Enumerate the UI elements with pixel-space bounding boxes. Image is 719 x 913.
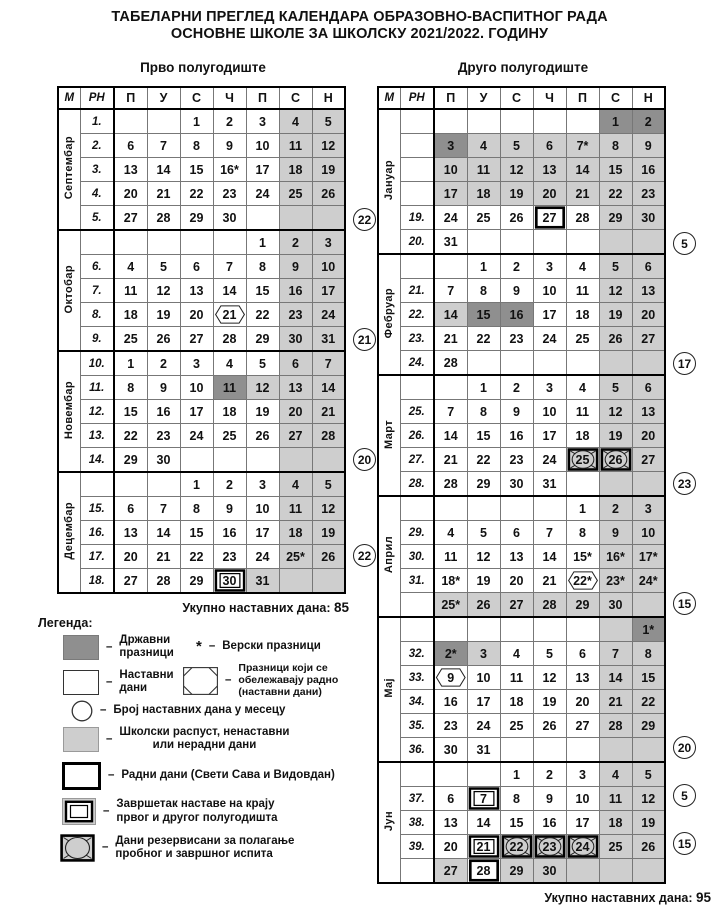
day-cell: 13: [533, 158, 566, 182]
day-cell: 26: [147, 327, 180, 352]
day-cell: 1: [180, 472, 213, 497]
day-cell: 10: [566, 787, 599, 811]
day-header-cell: П: [246, 87, 279, 109]
day-cell: 31: [533, 472, 566, 497]
exam-reserved-day-icon: [567, 835, 599, 858]
day-cell: 22: [114, 424, 147, 448]
second-semester-heading: Друго полугодиште: [377, 60, 669, 80]
week-number-cell: [400, 375, 434, 400]
day-cell: [434, 496, 467, 521]
week-number-cell: 21.: [400, 279, 434, 303]
legend-item-working-day: –Радни дани (Свети Сава и Видовдан): [62, 762, 335, 790]
day-cell: [566, 351, 599, 376]
day-cell: 30: [213, 206, 246, 231]
day-cell: 24: [434, 206, 467, 230]
day-cell: 22: [246, 303, 279, 327]
day-cell: [467, 351, 500, 376]
day-cell: [147, 109, 180, 134]
legend-dash: –: [106, 733, 112, 746]
day-cell: 20: [566, 690, 599, 714]
second-semester-table: МРНПУСЧПСНЈануар1234567*8910111213141516…: [377, 86, 666, 884]
day-cell: 4: [434, 521, 467, 545]
day-cell: 29: [180, 206, 213, 231]
day-cell: 13: [114, 521, 147, 545]
day-cell: 3: [566, 762, 599, 787]
week-number-cell: 36.: [400, 738, 434, 763]
day-cell: 9: [147, 376, 180, 400]
day-cell: 5: [467, 521, 500, 545]
day-cell: 25*: [279, 545, 312, 569]
day-cell: 23: [533, 835, 566, 859]
day-cell: [500, 230, 533, 255]
day-cell: [632, 472, 665, 497]
day-cell: 17: [533, 424, 566, 448]
day-cell: 7: [434, 400, 467, 424]
day-cell: [467, 109, 500, 134]
day-cell: 5: [599, 254, 632, 279]
day-cell: 11: [566, 279, 599, 303]
day-cell: 2: [599, 496, 632, 521]
day-cell: 12: [246, 376, 279, 400]
day-cell: 15: [632, 666, 665, 690]
day-cell: 8: [566, 521, 599, 545]
week-number-cell: 28.: [400, 472, 434, 497]
day-cell: 20: [114, 545, 147, 569]
day-cell: 10: [180, 376, 213, 400]
exam-reserved-day-icon: [534, 835, 566, 858]
day-cell: 13: [279, 376, 312, 400]
day-cell: 20: [500, 569, 533, 593]
day-cell: 25: [467, 206, 500, 230]
day-cell: 16*: [599, 545, 632, 569]
day-cell: 7: [312, 351, 345, 376]
legend-item-working-holiday: –Празници који се обележавају радно (нас…: [183, 663, 338, 698]
month-label: Април: [378, 496, 400, 617]
day-header-cell: С: [599, 87, 632, 109]
first-semester-table-wrap: МРНПУСЧПСНСептембар1.123452.67891011123.…: [57, 86, 392, 594]
legend-dash: –: [106, 641, 112, 654]
day-cell: 26: [500, 206, 533, 230]
day-cell: 23: [632, 182, 665, 206]
page-title: ТАБЕЛАРНИ ПРЕГЛЕД КАЛЕНДАРА ОБРАЗОВНО-ВА…: [0, 9, 719, 43]
day-cell: 22: [467, 327, 500, 351]
day-cell: 28: [434, 351, 467, 376]
legend-dash: –: [100, 704, 106, 717]
day-cell: 1: [599, 109, 632, 134]
day-cell: 26: [312, 545, 345, 569]
legend-item-religious-holiday: *–Верски празници: [196, 640, 321, 653]
day-cell: 17: [180, 400, 213, 424]
day-cell: [533, 109, 566, 134]
day-cell: [312, 206, 345, 231]
day-cell: 14: [434, 424, 467, 448]
day-cell: 16: [279, 279, 312, 303]
week-number-cell: 10.: [80, 351, 114, 376]
week-number-cell: 32.: [400, 642, 434, 666]
day-cell: 18: [279, 158, 312, 182]
day-cell: 14: [599, 666, 632, 690]
day-cell: 23*: [599, 569, 632, 593]
day-cell: 18: [599, 811, 632, 835]
day-cell: 30: [533, 859, 566, 884]
day-cell: 26: [312, 182, 345, 206]
day-cell: 8: [632, 642, 665, 666]
day-cell: [599, 617, 632, 642]
day-cell: 18: [566, 424, 599, 448]
day-cell: 29: [566, 593, 599, 618]
day-cell: 7: [147, 497, 180, 521]
week-number-cell: 23.: [400, 327, 434, 351]
day-header-cell: Н: [632, 87, 665, 109]
day-cell: [434, 254, 467, 279]
day-cell: 31: [434, 230, 467, 255]
day-cell: 12: [632, 787, 665, 811]
day-cell: 27: [500, 593, 533, 618]
exam-reserved-day-icon: [567, 448, 599, 471]
day-cell: 9: [213, 497, 246, 521]
day-cell: 20: [114, 182, 147, 206]
day-cell: 14: [147, 521, 180, 545]
day-cell: 25*: [434, 593, 467, 618]
day-cell: 6: [434, 787, 467, 811]
total-value: 85: [334, 600, 349, 615]
day-cell: 21: [599, 690, 632, 714]
legend-item-semester-end: –Завршетак наставе на крају првог и друг…: [62, 798, 278, 825]
teaching-days-count-circle: 23: [673, 472, 696, 495]
day-cell: 15: [180, 158, 213, 182]
day-cell: 18: [467, 182, 500, 206]
teaching-days-count-circle: 15: [673, 592, 696, 615]
day-cell: 19: [467, 569, 500, 593]
day-cell: 18: [566, 303, 599, 327]
day-cell: 29: [632, 714, 665, 738]
day-cell: [434, 762, 467, 787]
day-cell: 24: [246, 182, 279, 206]
day-cell: 16*: [213, 158, 246, 182]
total-label: Укупно наставних дана:: [544, 891, 692, 905]
day-cell: 22*: [566, 569, 599, 593]
legend-item-label: Празници који се обележавају радно (наст…: [238, 663, 338, 698]
week-number-cell: [400, 134, 434, 158]
day-cell: 13: [500, 545, 533, 569]
week-number-cell: 11.: [80, 376, 114, 400]
teaching-days-count-circle: 5: [673, 784, 696, 807]
day-cell: [533, 496, 566, 521]
day-cell: 3: [180, 351, 213, 376]
day-cell: 22: [180, 545, 213, 569]
day-cell: 29: [246, 327, 279, 352]
column-header-month: М: [58, 87, 80, 109]
day-cell: 14: [566, 158, 599, 182]
day-cell: 1: [246, 230, 279, 255]
day-cell: 5: [599, 375, 632, 400]
week-number-cell: [400, 158, 434, 182]
teaching-days-count-circle: 20: [353, 448, 376, 471]
day-cell: 8: [599, 134, 632, 158]
day-cell: [434, 375, 467, 400]
week-number-cell: 38.: [400, 811, 434, 835]
day-cell: 15: [467, 303, 500, 327]
day-cell: 28: [312, 424, 345, 448]
month-label: Мај: [378, 617, 400, 762]
day-cell: [533, 230, 566, 255]
day-cell: 2: [500, 254, 533, 279]
working-day-box-swatch: [62, 762, 101, 790]
day-cell: 10: [434, 158, 467, 182]
day-cell: 28: [467, 859, 500, 884]
day-cell: 4: [279, 472, 312, 497]
day-cell: 6: [500, 521, 533, 545]
day-cell: [599, 738, 632, 763]
day-cell: 17: [434, 182, 467, 206]
day-cell: 27: [114, 569, 147, 594]
day-cell: [632, 738, 665, 763]
week-number-cell: 19.: [400, 206, 434, 230]
day-cell: 27: [114, 206, 147, 231]
working-day-box-icon: [534, 206, 566, 229]
day-cell: 23: [213, 182, 246, 206]
week-number-cell: 33.: [400, 666, 434, 690]
month-label-text: Јун: [383, 811, 395, 831]
week-number-cell: [400, 593, 434, 618]
day-cell: 2: [500, 375, 533, 400]
day-cell: 15: [114, 400, 147, 424]
day-cell: 1: [500, 762, 533, 787]
legend-item-state-holiday: –Државни празници: [63, 634, 174, 660]
day-cell: 28: [147, 569, 180, 594]
week-number-cell: 5.: [80, 206, 114, 231]
week-number-cell: 25.: [400, 400, 434, 424]
month-label-text: Фебруар: [383, 288, 395, 338]
first-semester-heading: Прво полугодиште: [57, 60, 349, 80]
day-cell: 19: [632, 811, 665, 835]
day-cell: 11: [566, 400, 599, 424]
day-cell: 28: [434, 472, 467, 497]
day-cell: 24: [312, 303, 345, 327]
semester-end-double-box-icon: [214, 569, 246, 592]
day-cell: 2: [632, 109, 665, 134]
day-cell: 6: [632, 375, 665, 400]
day-cell: 14: [312, 376, 345, 400]
day-cell: 19: [533, 690, 566, 714]
day-cell: [566, 472, 599, 497]
week-number-cell: 7.: [80, 279, 114, 303]
semester-end-double-box-icon: [468, 835, 500, 858]
day-cell: 19: [599, 303, 632, 327]
week-number-cell: [400, 762, 434, 787]
day-cell: 12: [500, 158, 533, 182]
day-cell: 2*: [434, 642, 467, 666]
day-cell: 5: [246, 351, 279, 376]
day-cell: 24: [566, 835, 599, 859]
day-cell: 3: [434, 134, 467, 158]
day-cell: 30: [279, 327, 312, 352]
day-cell: [147, 472, 180, 497]
day-cell: 8: [246, 255, 279, 279]
day-cell: 16: [632, 158, 665, 182]
legend-heading: Легенда:: [38, 616, 92, 630]
day-cell: 22: [180, 182, 213, 206]
day-cell: 26: [599, 448, 632, 472]
day-cell: 25: [114, 327, 147, 352]
day-cell: 13: [180, 279, 213, 303]
day-header-cell: Н: [312, 87, 345, 109]
day-cell: 21: [147, 545, 180, 569]
day-header-cell: С: [180, 87, 213, 109]
day-cell: [599, 472, 632, 497]
day-cell: 16: [434, 690, 467, 714]
month-label-text: Новембар: [63, 381, 75, 439]
day-cell: 3: [632, 496, 665, 521]
day-cell: 24: [533, 448, 566, 472]
day-cell: 5: [312, 109, 345, 134]
day-cell: [599, 859, 632, 884]
month-label: Септембар: [58, 109, 80, 230]
day-cell: 15*: [566, 545, 599, 569]
month-label-text: Април: [383, 536, 395, 573]
day-cell: 17: [467, 690, 500, 714]
day-cell: 11: [213, 376, 246, 400]
month-label-text: Мај: [383, 678, 395, 698]
day-cell: 30: [632, 206, 665, 230]
legend-item-teaching-day: –Наставни дани: [63, 669, 174, 695]
day-cell: 30: [147, 448, 180, 473]
day-cell: 6: [114, 497, 147, 521]
day-cell: [312, 448, 345, 473]
legend-item-label: Дани резервисани за полагање пробног и з…: [115, 835, 294, 861]
day-cell: 26: [467, 593, 500, 618]
day-cell: 4: [566, 375, 599, 400]
day-cell: 27: [180, 327, 213, 352]
day-header-cell: П: [434, 87, 467, 109]
day-cell: 23: [434, 714, 467, 738]
day-cell: [467, 762, 500, 787]
day-header-cell: Ч: [213, 87, 246, 109]
month-label: Октобар: [58, 230, 80, 351]
first-semester-table: МРНПУСЧПСНСептембар1.123452.67891011123.…: [57, 86, 346, 594]
day-cell: 5: [533, 642, 566, 666]
day-cell: 16: [500, 424, 533, 448]
day-cell: 13: [566, 666, 599, 690]
day-cell: 8: [500, 787, 533, 811]
day-cell: 10: [246, 497, 279, 521]
total-value: 95: [696, 890, 711, 905]
day-cell: [114, 230, 147, 255]
day-cell: 12: [599, 400, 632, 424]
day-cell: 3: [246, 109, 279, 134]
month-label: Фебруар: [378, 254, 400, 375]
month-label: Јун: [378, 762, 400, 883]
day-cell: 4: [213, 351, 246, 376]
day-cell: 1*: [632, 617, 665, 642]
week-number-cell: 12.: [80, 400, 114, 424]
day-cell: 15: [599, 158, 632, 182]
count-circle-swatch: [71, 700, 93, 722]
day-cell: 6: [114, 134, 147, 158]
day-cell: 31: [312, 327, 345, 352]
day-cell: 6: [566, 642, 599, 666]
day-cell: 5: [147, 255, 180, 279]
day-cell: [599, 230, 632, 255]
column-header-month: М: [378, 87, 400, 109]
working-holiday-hexagon-icon: [214, 303, 246, 326]
day-cell: [467, 617, 500, 642]
day-cell: 29: [180, 569, 213, 594]
week-number-cell: [80, 472, 114, 497]
day-cell: 28: [599, 714, 632, 738]
day-cell: 23: [279, 303, 312, 327]
page-title-line2: ОСНОВНЕ ШКОЛЕ ЗА ШКОЛСКУ 2021/2022. ГОДИ…: [0, 26, 719, 43]
working-holiday-hexagon-icon: [567, 569, 599, 592]
legend-item-label: Завршетак наставе на крају првог и друго…: [116, 798, 277, 824]
day-cell: 9: [533, 787, 566, 811]
legend-item-label: Школски распуст, ненаставни или нерадни …: [119, 726, 289, 752]
day-cell: [114, 472, 147, 497]
week-number-cell: [80, 230, 114, 255]
day-cell: 2: [279, 230, 312, 255]
day-cell: 14: [213, 279, 246, 303]
exam-days-swatch: [60, 834, 95, 862]
day-cell: 23: [213, 545, 246, 569]
day-cell: 16: [533, 811, 566, 835]
day-cell: 18: [500, 690, 533, 714]
day-cell: 20: [533, 182, 566, 206]
day-header-cell: Ч: [533, 87, 566, 109]
teaching-days-count-circle: 21: [353, 328, 376, 351]
day-cell: 18*: [434, 569, 467, 593]
day-cell: 10: [246, 134, 279, 158]
day-cell: [500, 617, 533, 642]
day-cell: 24: [533, 327, 566, 351]
legend-dash: –: [225, 674, 231, 687]
day-cell: 8: [114, 376, 147, 400]
column-header-week-number: РН: [80, 87, 114, 109]
day-cell: 22: [632, 690, 665, 714]
month-label-text: Октобар: [63, 265, 75, 313]
working-holiday-hexagon-icon: [435, 666, 467, 689]
day-cell: 11: [599, 787, 632, 811]
day-cell: 23: [500, 448, 533, 472]
day-cell: 13: [632, 400, 665, 424]
day-cell: 14: [147, 158, 180, 182]
first-semester-total: Укупно наставних дана: 85: [57, 600, 349, 615]
day-cell: 21: [147, 182, 180, 206]
exam-reserved-day-icon: [501, 835, 533, 858]
day-cell: [632, 593, 665, 618]
day-cell: 1: [114, 351, 147, 376]
day-cell: 1: [467, 254, 500, 279]
semester-end-double-box-icon: [468, 787, 500, 810]
day-cell: 14: [533, 545, 566, 569]
day-cell: 4: [566, 254, 599, 279]
day-cell: 5: [632, 762, 665, 787]
day-cell: [500, 496, 533, 521]
week-number-cell: 1.: [80, 109, 114, 134]
day-cell: 21: [213, 303, 246, 327]
day-cell: 10: [312, 255, 345, 279]
month-label: Децембар: [58, 472, 80, 593]
legend-item-label: Наставни дани: [119, 669, 173, 695]
week-number-cell: 2.: [80, 134, 114, 158]
day-cell: [279, 448, 312, 473]
day-cell: [434, 617, 467, 642]
week-number-cell: 16.: [80, 521, 114, 545]
day-cell: 21: [566, 182, 599, 206]
second-semester-section: Друго полугодиште МРНПУСЧПСНЈануар123456…: [377, 60, 719, 905]
week-number-cell: 18.: [80, 569, 114, 594]
day-cell: 30: [213, 569, 246, 594]
day-cell: 4: [279, 109, 312, 134]
